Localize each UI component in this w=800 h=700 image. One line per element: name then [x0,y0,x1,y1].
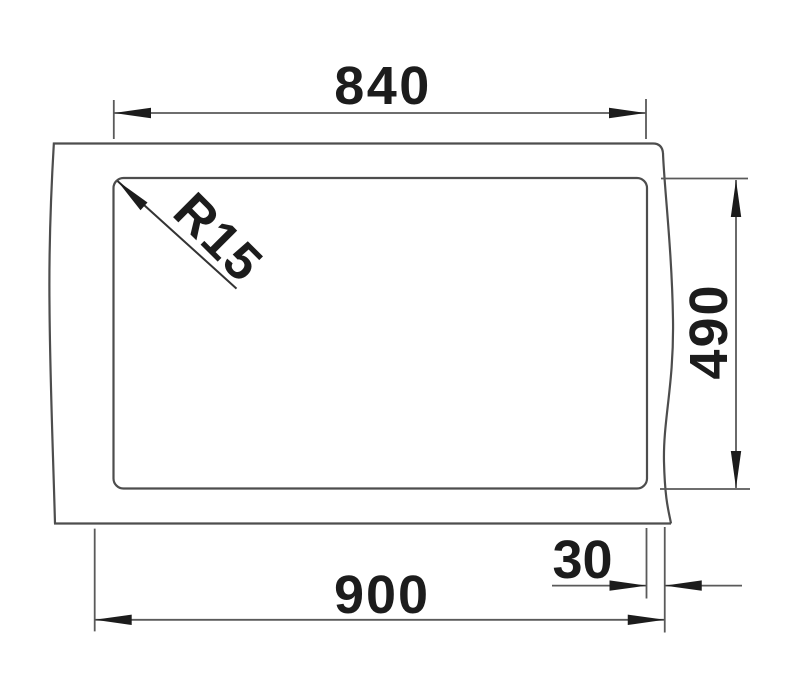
svg-text:840: 840 [334,56,432,116]
svg-text:30: 30 [552,530,612,590]
svg-text:900: 900 [334,565,430,625]
svg-text:490: 490 [679,283,739,379]
